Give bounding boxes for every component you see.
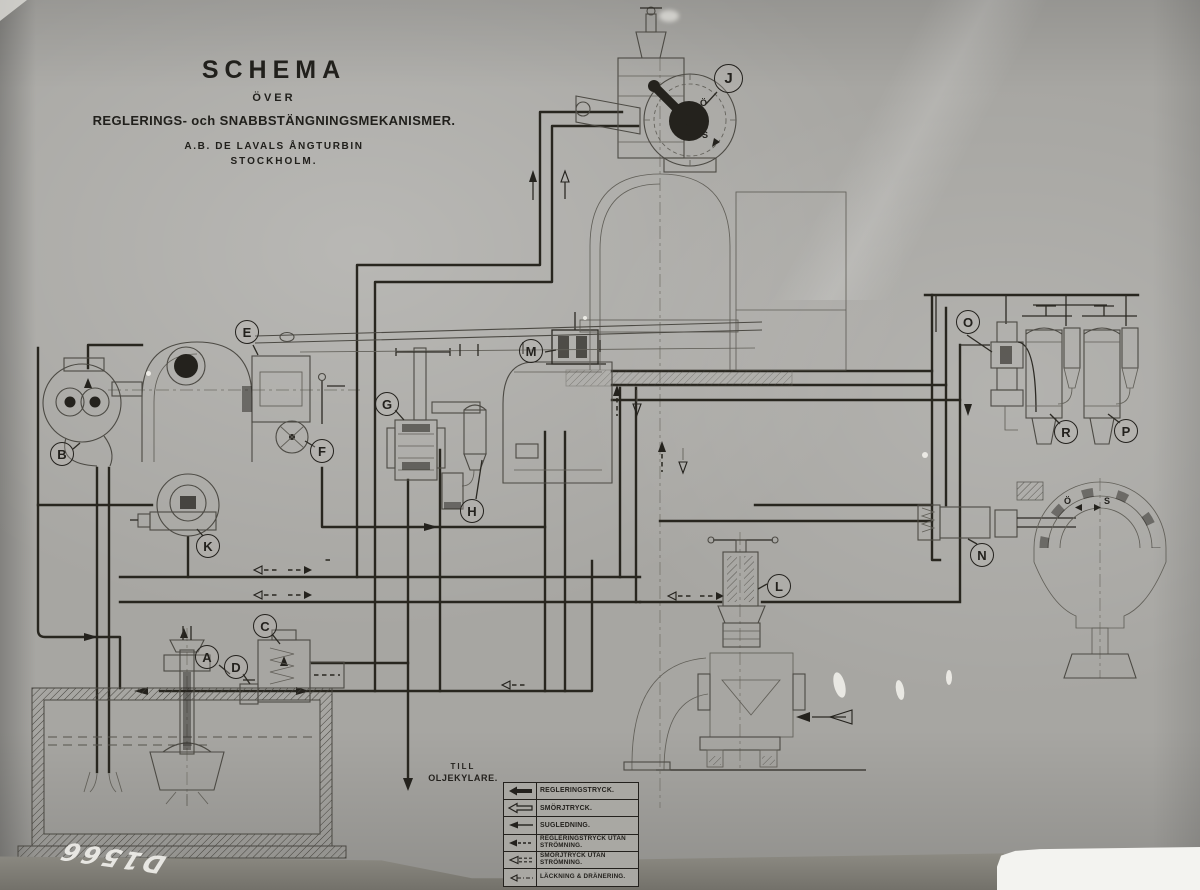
quick-closing-relay-column	[576, 7, 716, 172]
component-label-c: C	[253, 614, 277, 638]
servo-open-mark: Ö	[1064, 496, 1071, 506]
oil-tank	[18, 688, 346, 858]
title-block: SCHEMA ÖVER REGLERINGS- och SNABBSTÄNGNI…	[88, 56, 460, 167]
turbine-casing-outline	[566, 174, 846, 386]
piping-network	[38, 112, 1138, 779]
regulating-lever	[255, 322, 762, 356]
legend-label: REGLERINGSTRYCK.	[537, 783, 638, 799]
torn-corner	[997, 847, 1200, 890]
legend-label: SMÖRJTRYCK UTAN STRÖMNING.	[537, 852, 638, 868]
pilot-cylinder-h	[442, 405, 486, 509]
thin-solid-arrow-icon	[504, 817, 537, 833]
label-leader-lines	[73, 92, 1120, 684]
steam-valve-casing	[1017, 482, 1166, 678]
component-label-r: R	[1054, 420, 1078, 444]
legend-table: REGLERINGSTRYCK. SMÖRJTRYCK. SUGLEDNING.…	[503, 782, 639, 887]
legend-row: REGLERINGSTRYCK.	[504, 783, 638, 800]
drawing-title-over: ÖVER	[88, 92, 460, 104]
photo-blemish	[922, 452, 928, 458]
component-label-n: N	[970, 543, 994, 567]
small-arrow-dashdot-tail-icon	[504, 869, 537, 886]
component-label-f: F	[310, 439, 334, 463]
to-oil-cooler-note: TILL OLJEKYLARE.	[413, 762, 513, 783]
legend-row: LÄCKNING & DRÄNERING.	[504, 869, 638, 886]
legend-row: REGLERINGSTRYCK UTAN STRÖMNING.	[504, 835, 638, 852]
photo-blemish	[659, 10, 679, 22]
solid-arrow-dashed-tail-icon	[504, 835, 537, 851]
outline-arrow-icon	[504, 800, 537, 816]
company-name: A.B. DE LAVALS ÅNGTURBIN	[88, 141, 460, 152]
legend-label: SUGLEDNING.	[537, 817, 638, 833]
component-label-a: A	[195, 645, 219, 669]
photo-blemish	[146, 371, 151, 376]
legend-label: REGLERINGSTRYCK UTAN STRÖMNING.	[537, 835, 638, 851]
servomotor-n	[918, 505, 1076, 540]
to-oil-cooler-line1: TILL	[413, 762, 513, 771]
component-label-m: M	[519, 339, 543, 363]
legend-row: SUGLEDNING.	[504, 817, 638, 834]
relay-o	[991, 322, 1036, 430]
drawing-subtitle: REGLERINGS- och SNABBSTÄNGNINGSMEKANISME…	[88, 113, 460, 128]
component-label-b: B	[50, 442, 74, 466]
handwheel-f	[276, 421, 308, 453]
company-city: STOCKHOLM.	[88, 156, 460, 167]
solid-arrow-icon	[504, 783, 537, 799]
legend-row: SMÖRJTRYCK UTAN STRÖMNING.	[504, 852, 638, 869]
to-oil-cooler-line2: OLJEKYLARE.	[413, 773, 513, 783]
component-label-g: G	[375, 392, 399, 416]
component-label-j: J	[714, 64, 743, 93]
governor-shut-mark: S	[702, 130, 708, 140]
component-label-p: P	[1114, 419, 1138, 443]
servo-shut-mark: S	[1104, 496, 1110, 506]
component-label-o: O	[956, 310, 980, 334]
photo-blemish	[583, 316, 587, 320]
legend-label: SMÖRJTRYCK.	[537, 800, 638, 816]
drawing-title: SCHEMA	[88, 56, 460, 85]
photo-blemish	[946, 670, 952, 685]
component-label-k: K	[196, 534, 220, 558]
legend-row: SMÖRJTRYCK.	[504, 800, 638, 817]
component-label-d: D	[224, 655, 248, 679]
photographed-schematic: SCHEMA ÖVER REGLERINGS- och SNABBSTÄNGNI…	[0, 0, 1200, 890]
component-label-h: H	[460, 499, 484, 523]
governor-open-mark: Ö	[700, 98, 707, 108]
legend-label: LÄCKNING & DRÄNERING.	[537, 869, 638, 886]
component-label-e: E	[235, 320, 259, 344]
outline-arrow-dashed-tail-icon	[504, 852, 537, 868]
relay-chamber-m	[503, 312, 612, 483]
component-label-l: L	[767, 574, 791, 598]
